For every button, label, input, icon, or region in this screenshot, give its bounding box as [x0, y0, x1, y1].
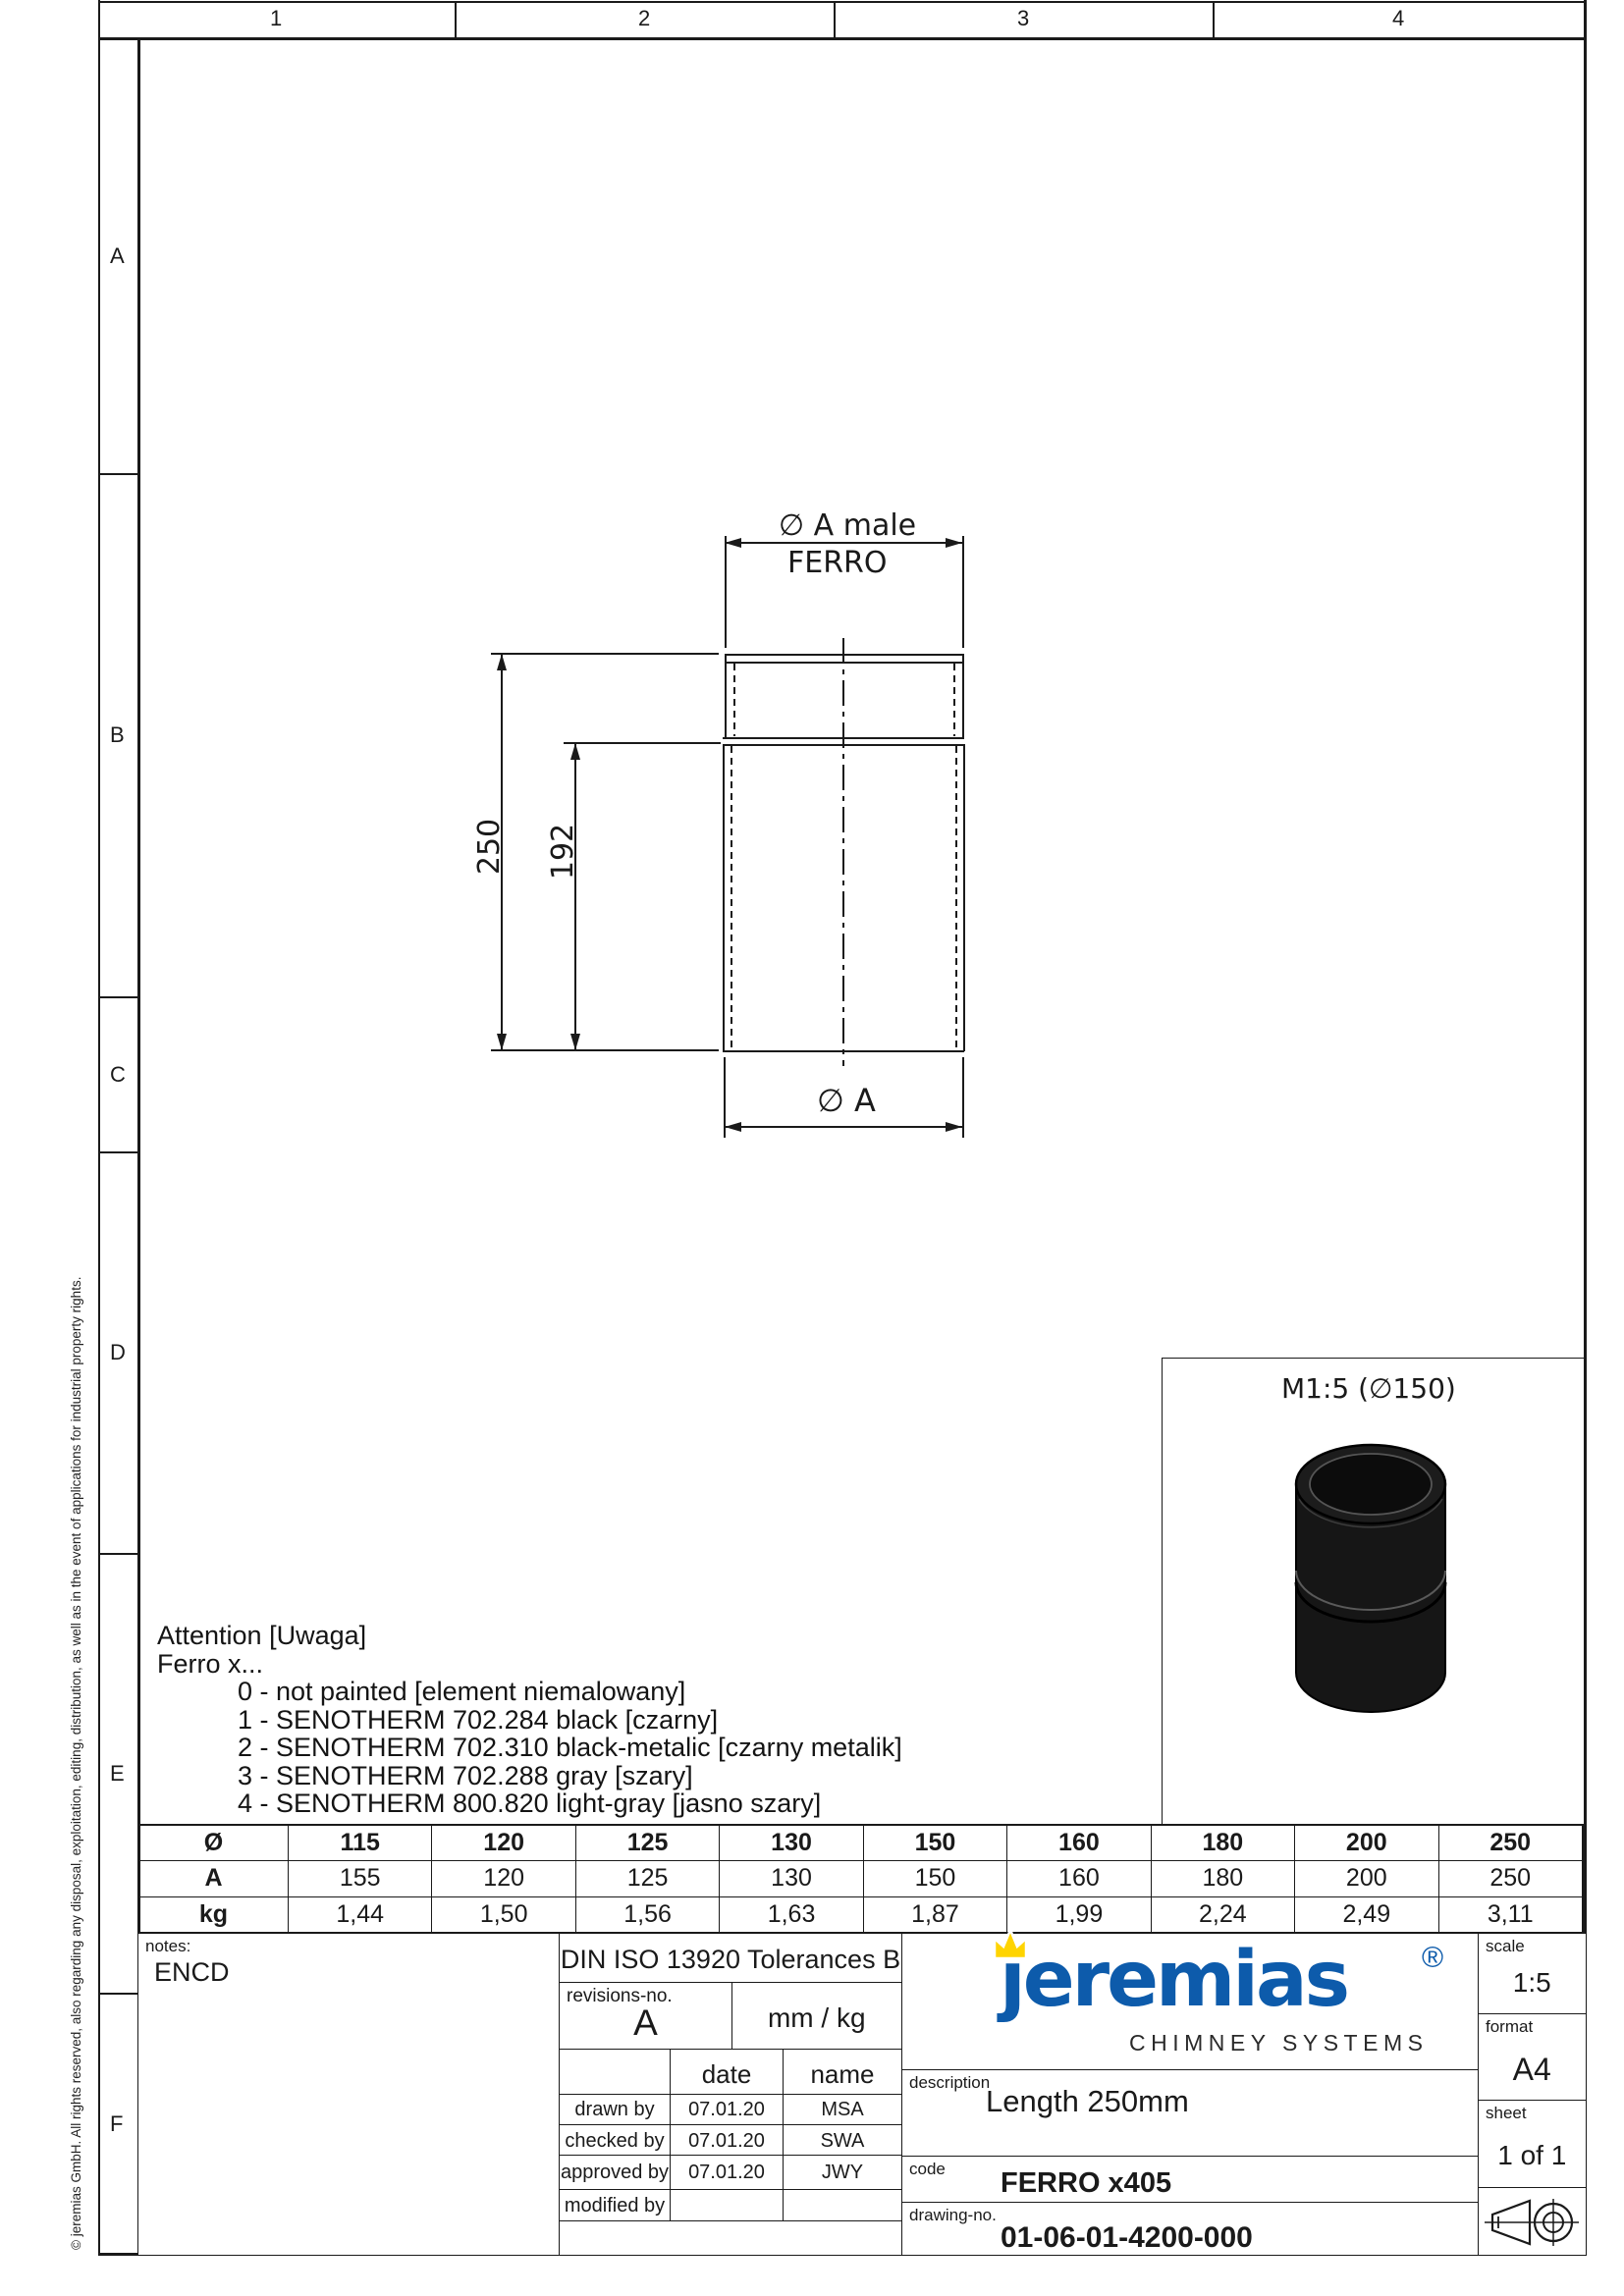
jeremias-wordmark: jeremias [1000, 1936, 1347, 2024]
logo-tagline: CHIMNEY SYSTEMS [1129, 2030, 1416, 2056]
attention-title: Attention [Uwaga] [157, 1622, 902, 1650]
signoff-label: approved by [560, 2162, 670, 2184]
signoff-name: JWY [784, 2162, 901, 2184]
frame-right [1584, 0, 1587, 2256]
a-cell: 180 [1152, 1861, 1295, 1896]
pipe-male-hidden-left [733, 664, 735, 736]
signoff-date: 07.01.20 [671, 2130, 784, 2153]
top-ruler-label-4: 4 [1392, 6, 1404, 31]
left-ruler-label-d: D [110, 1340, 126, 1365]
dim-192-ext-top [564, 742, 721, 744]
left-ruler-tick-cd [98, 1151, 139, 1153]
name-header: name [784, 2059, 901, 2090]
signoff-date-cell [670, 2189, 785, 2222]
pipe-3d-render [1272, 1425, 1469, 1749]
row-header-diameter: Ø [139, 1826, 289, 1860]
kg-cell: 1,63 [720, 1897, 863, 1932]
frame-top [98, 37, 1587, 40]
signoff-label-cell: approved by [559, 2155, 671, 2190]
a-cell: 125 [576, 1861, 720, 1896]
top-ruler-top-line [98, 1, 1585, 3]
revision-value: A [560, 2002, 731, 2044]
dim-192-line [574, 743, 576, 1050]
dim-250-ext-top [491, 653, 719, 655]
pipe-male-right-edge [962, 654, 964, 738]
tolerances-text: DIN ISO 13920 Tolerances B [560, 1945, 901, 1975]
dim-top-ext-right [962, 536, 964, 648]
format-label: format [1486, 2017, 1533, 2037]
copyright-note: © jeremias GmbH. All rights reserved, al… [69, 1277, 83, 2250]
signoff-name-cell [783, 2189, 902, 2222]
name-header-cell: name [783, 2049, 902, 2096]
dim-250-ext-bottom [491, 1049, 719, 1051]
left-ruler-label-f: F [110, 2111, 123, 2137]
revisions-cell: revisions-no. A [559, 1982, 732, 2050]
signoff-label-cell: checked by [559, 2124, 671, 2157]
dim-192-arrow-bottom [570, 1034, 580, 1050]
pipe-body-hidden-left [731, 746, 732, 1049]
diameter-cell: 130 [720, 1826, 863, 1860]
pipe-male-hidden-right [953, 664, 955, 736]
description-value: Length 250mm [986, 2084, 1189, 2119]
code-cell: code FERRO x405 [901, 2156, 1480, 2204]
top-ruler-tick-2 [834, 1, 836, 38]
pipe-centerline [842, 638, 844, 1066]
registered-mark: ® [1422, 1942, 1443, 1975]
detail-view-label: M1:5 (∅150) [1281, 1372, 1456, 1405]
a-cell: 155 [289, 1861, 432, 1896]
dim-label-250: 250 [472, 819, 507, 875]
signoff-label: checked by [560, 2130, 670, 2153]
crown-icon [990, 1927, 1031, 1960]
scale-value: 1:5 [1479, 1967, 1586, 1999]
attention-block: Attention [Uwaga] Ferro x... 0 - not pai… [157, 1622, 902, 1818]
dim-bottom-arrow-right [946, 1122, 962, 1132]
dim-250-arrow-top [497, 654, 507, 670]
notes-cell: notes: ENCD [137, 1933, 560, 2256]
left-ruler-label-b: B [110, 722, 125, 748]
left-ruler-tick-ef [98, 1993, 139, 1995]
kg-cell: 1,87 [864, 1897, 1007, 1932]
signoff-date-cell: 07.01.20 [670, 2094, 785, 2125]
signoff-empty-row [559, 2220, 902, 2256]
units-cell: mm / kg [731, 1982, 903, 2050]
diameter-cell: 200 [1295, 1826, 1438, 1860]
size-table-kg-row: kg 1,44 1,50 1,56 1,63 1,87 1,99 2,24 2,… [139, 1897, 1582, 1932]
code-label: code [909, 2160, 946, 2179]
drawing-no-cell: drawing-no. 01-06-01-4200-000 [901, 2202, 1480, 2256]
signoff-date: 07.01.20 [671, 2099, 784, 2121]
kg-cell: 2,49 [1295, 1897, 1438, 1932]
signoff-date: 07.01.20 [671, 2162, 784, 2184]
size-table-diameter-row: Ø 115 120 125 130 150 160 180 200 250 [139, 1826, 1582, 1861]
notes-label: notes: [145, 1937, 190, 1956]
pipe-male-left-edge [725, 654, 727, 738]
kg-cell: 1,56 [576, 1897, 720, 1932]
a-cell: 160 [1007, 1861, 1151, 1896]
signoff-label-cell: drawn by [559, 2094, 671, 2125]
signoff-name-cell: JWY [783, 2155, 902, 2190]
attention-item: 2 - SENOTHERM 702.310 black-metalic [cza… [157, 1734, 902, 1762]
top-ruler-tick-1 [455, 1, 457, 38]
a-cell: 200 [1295, 1861, 1438, 1896]
left-ruler-tick-ab [98, 473, 139, 475]
drawing-no-value: 01-06-01-4200-000 [1001, 2221, 1253, 2255]
left-ruler-tick-de [98, 1553, 139, 1555]
units-value: mm / kg [732, 2002, 902, 2034]
attention-subtitle: Ferro x... [157, 1650, 902, 1679]
dim-top-arrow-left [725, 538, 741, 548]
dim-bottom-line [725, 1126, 964, 1128]
signoff-date-cell: 07.01.20 [670, 2124, 785, 2157]
dim-label-a: ∅ A [817, 1082, 876, 1119]
drawing-no-label: drawing-no. [909, 2206, 997, 2225]
top-ruler-label-2: 2 [638, 6, 650, 31]
signoff-name: SWA [784, 2130, 901, 2153]
pipe-male-top-edge [725, 654, 964, 656]
kg-cell: 3,11 [1439, 1897, 1582, 1932]
dim-label-ferro: FERRO [787, 546, 888, 580]
pipe-body-right-edge [963, 744, 965, 1051]
date-header: date [671, 2059, 784, 2090]
attention-item: 3 - SENOTHERM 702.288 gray [szary] [157, 1762, 902, 1790]
a-cell: 150 [864, 1861, 1007, 1896]
format-cell: format A4 [1478, 2013, 1587, 2101]
dim-label-a-male: ∅ A male [779, 508, 916, 543]
top-ruler-label-3: 3 [1017, 6, 1029, 31]
top-ruler-label-1: 1 [270, 6, 282, 31]
left-ruler-label-a: A [110, 243, 125, 269]
left-ruler-label-c: C [110, 1062, 126, 1088]
kg-cell: 2,24 [1152, 1897, 1295, 1932]
pipe-body-hidden-right [955, 746, 957, 1049]
dim-label-192: 192 [546, 824, 580, 880]
top-ruler-tick-3 [1213, 1, 1215, 38]
diameter-cell: 125 [576, 1826, 720, 1860]
a-cell: 250 [1439, 1861, 1582, 1896]
diameter-cell: 120 [432, 1826, 575, 1860]
frame-left-outer [98, 0, 100, 2256]
pipe-male-rim-line [725, 662, 964, 664]
left-ruler-tick-bc [98, 996, 139, 998]
dim-bottom-arrow-left [725, 1122, 741, 1132]
dim-top-ext-left [725, 536, 727, 648]
size-table: Ø 115 120 125 130 150 160 180 200 250 A … [137, 1824, 1584, 1934]
dim-top-arrow-right [946, 538, 962, 548]
diameter-cell: 250 [1439, 1826, 1582, 1860]
tolerances-cell: DIN ISO 13920 Tolerances B [559, 1933, 902, 1984]
pipe-body-left-edge [723, 744, 725, 1051]
attention-item: 4 - SENOTHERM 800.820 light-gray [jasno … [157, 1789, 902, 1818]
size-table-a-row: A 155 120 125 130 150 160 180 200 250 [139, 1861, 1582, 1896]
signoff-name: MSA [784, 2099, 901, 2121]
dim-192-arrow-top [570, 743, 580, 760]
notes-value: ENCD [154, 1957, 230, 1988]
scale-cell: scale 1:5 [1478, 1933, 1587, 2015]
kg-cell: 1,44 [289, 1897, 432, 1932]
row-header-kg: kg [139, 1897, 289, 1932]
format-value: A4 [1479, 2052, 1586, 2088]
dim-top-line [725, 542, 964, 544]
date-header-cell: date [670, 2049, 785, 2096]
signoff-label-cell: modified by [559, 2189, 671, 2222]
projection-symbol-icon [1485, 2195, 1579, 2250]
sheet-value: 1 of 1 [1479, 2140, 1586, 2171]
diameter-cell: 160 [1007, 1826, 1151, 1860]
diameter-cell: 180 [1152, 1826, 1295, 1860]
signoff-name-cell: SWA [783, 2124, 902, 2157]
dim-250-arrow-bottom [497, 1034, 507, 1050]
attention-item: 1 - SENOTHERM 702.284 black [czarny] [157, 1706, 902, 1735]
signoff-date-cell: 07.01.20 [670, 2155, 785, 2190]
code-value: FERRO x405 [1001, 2167, 1171, 2200]
diameter-cell: 115 [289, 1826, 432, 1860]
description-cell: description Length 250mm [901, 2069, 1480, 2157]
row-header-a: A [139, 1861, 289, 1896]
a-cell: 120 [432, 1861, 575, 1896]
drawing-sheet: 1 2 3 4 A B C D E F © jeremias GmbH. All… [0, 0, 1624, 2296]
signoff-corner-cell [559, 2049, 671, 2096]
scale-label: scale [1486, 1937, 1525, 1956]
diameter-cell: 150 [864, 1826, 1007, 1860]
kg-cell: 1,50 [432, 1897, 575, 1932]
a-cell: 130 [720, 1861, 863, 1896]
left-ruler-label-e: E [110, 1761, 125, 1787]
signoff-label: modified by [560, 2195, 670, 2217]
sheet-cell: sheet 1 of 1 [1478, 2100, 1587, 2189]
sheet-label: sheet [1486, 2104, 1527, 2123]
description-label: description [909, 2073, 990, 2093]
signoff-name-cell: MSA [783, 2094, 902, 2125]
signoff-label: drawn by [560, 2099, 670, 2121]
attention-item: 0 - not painted [element niemalowany] [157, 1678, 902, 1706]
